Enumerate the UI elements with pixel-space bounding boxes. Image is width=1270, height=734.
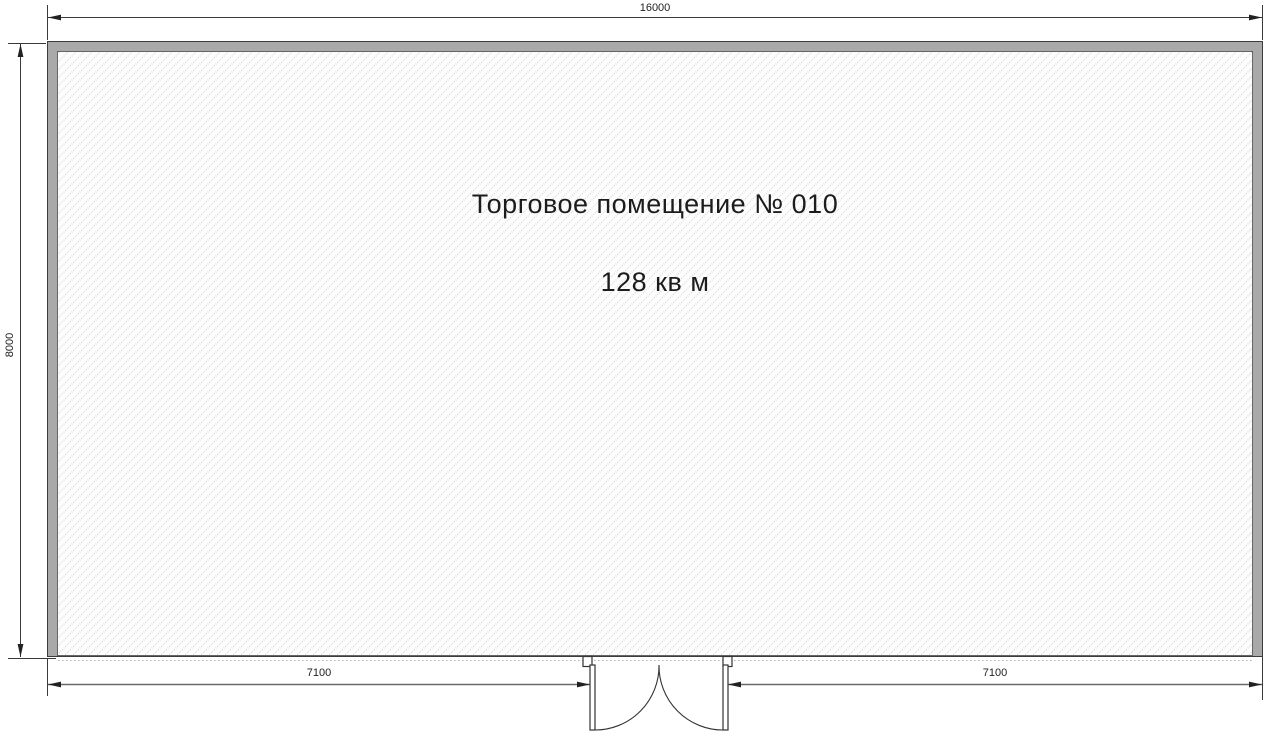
room-interior-hatch	[58, 52, 1253, 656]
door-swing-arc-right	[659, 665, 723, 730]
dimension-left-label: 8000	[4, 305, 16, 385]
room-title-label: Торговое помещение № 010	[48, 189, 1262, 220]
room-area-label: 128 кв м	[48, 267, 1262, 298]
door-leaf-left	[590, 665, 595, 730]
floor-plan: Торговое помещение № 010 128 кв м 16000 …	[0, 0, 1270, 734]
dimension-bottom-right-label: 7100	[728, 667, 1262, 679]
door-swing-arc-left	[595, 665, 659, 730]
plan-drawing	[0, 0, 1270, 734]
dimension-bottom-left-label: 7100	[48, 667, 590, 679]
entrance-double-door	[583, 657, 732, 731]
dimension-top-label: 16000	[48, 2, 1262, 14]
